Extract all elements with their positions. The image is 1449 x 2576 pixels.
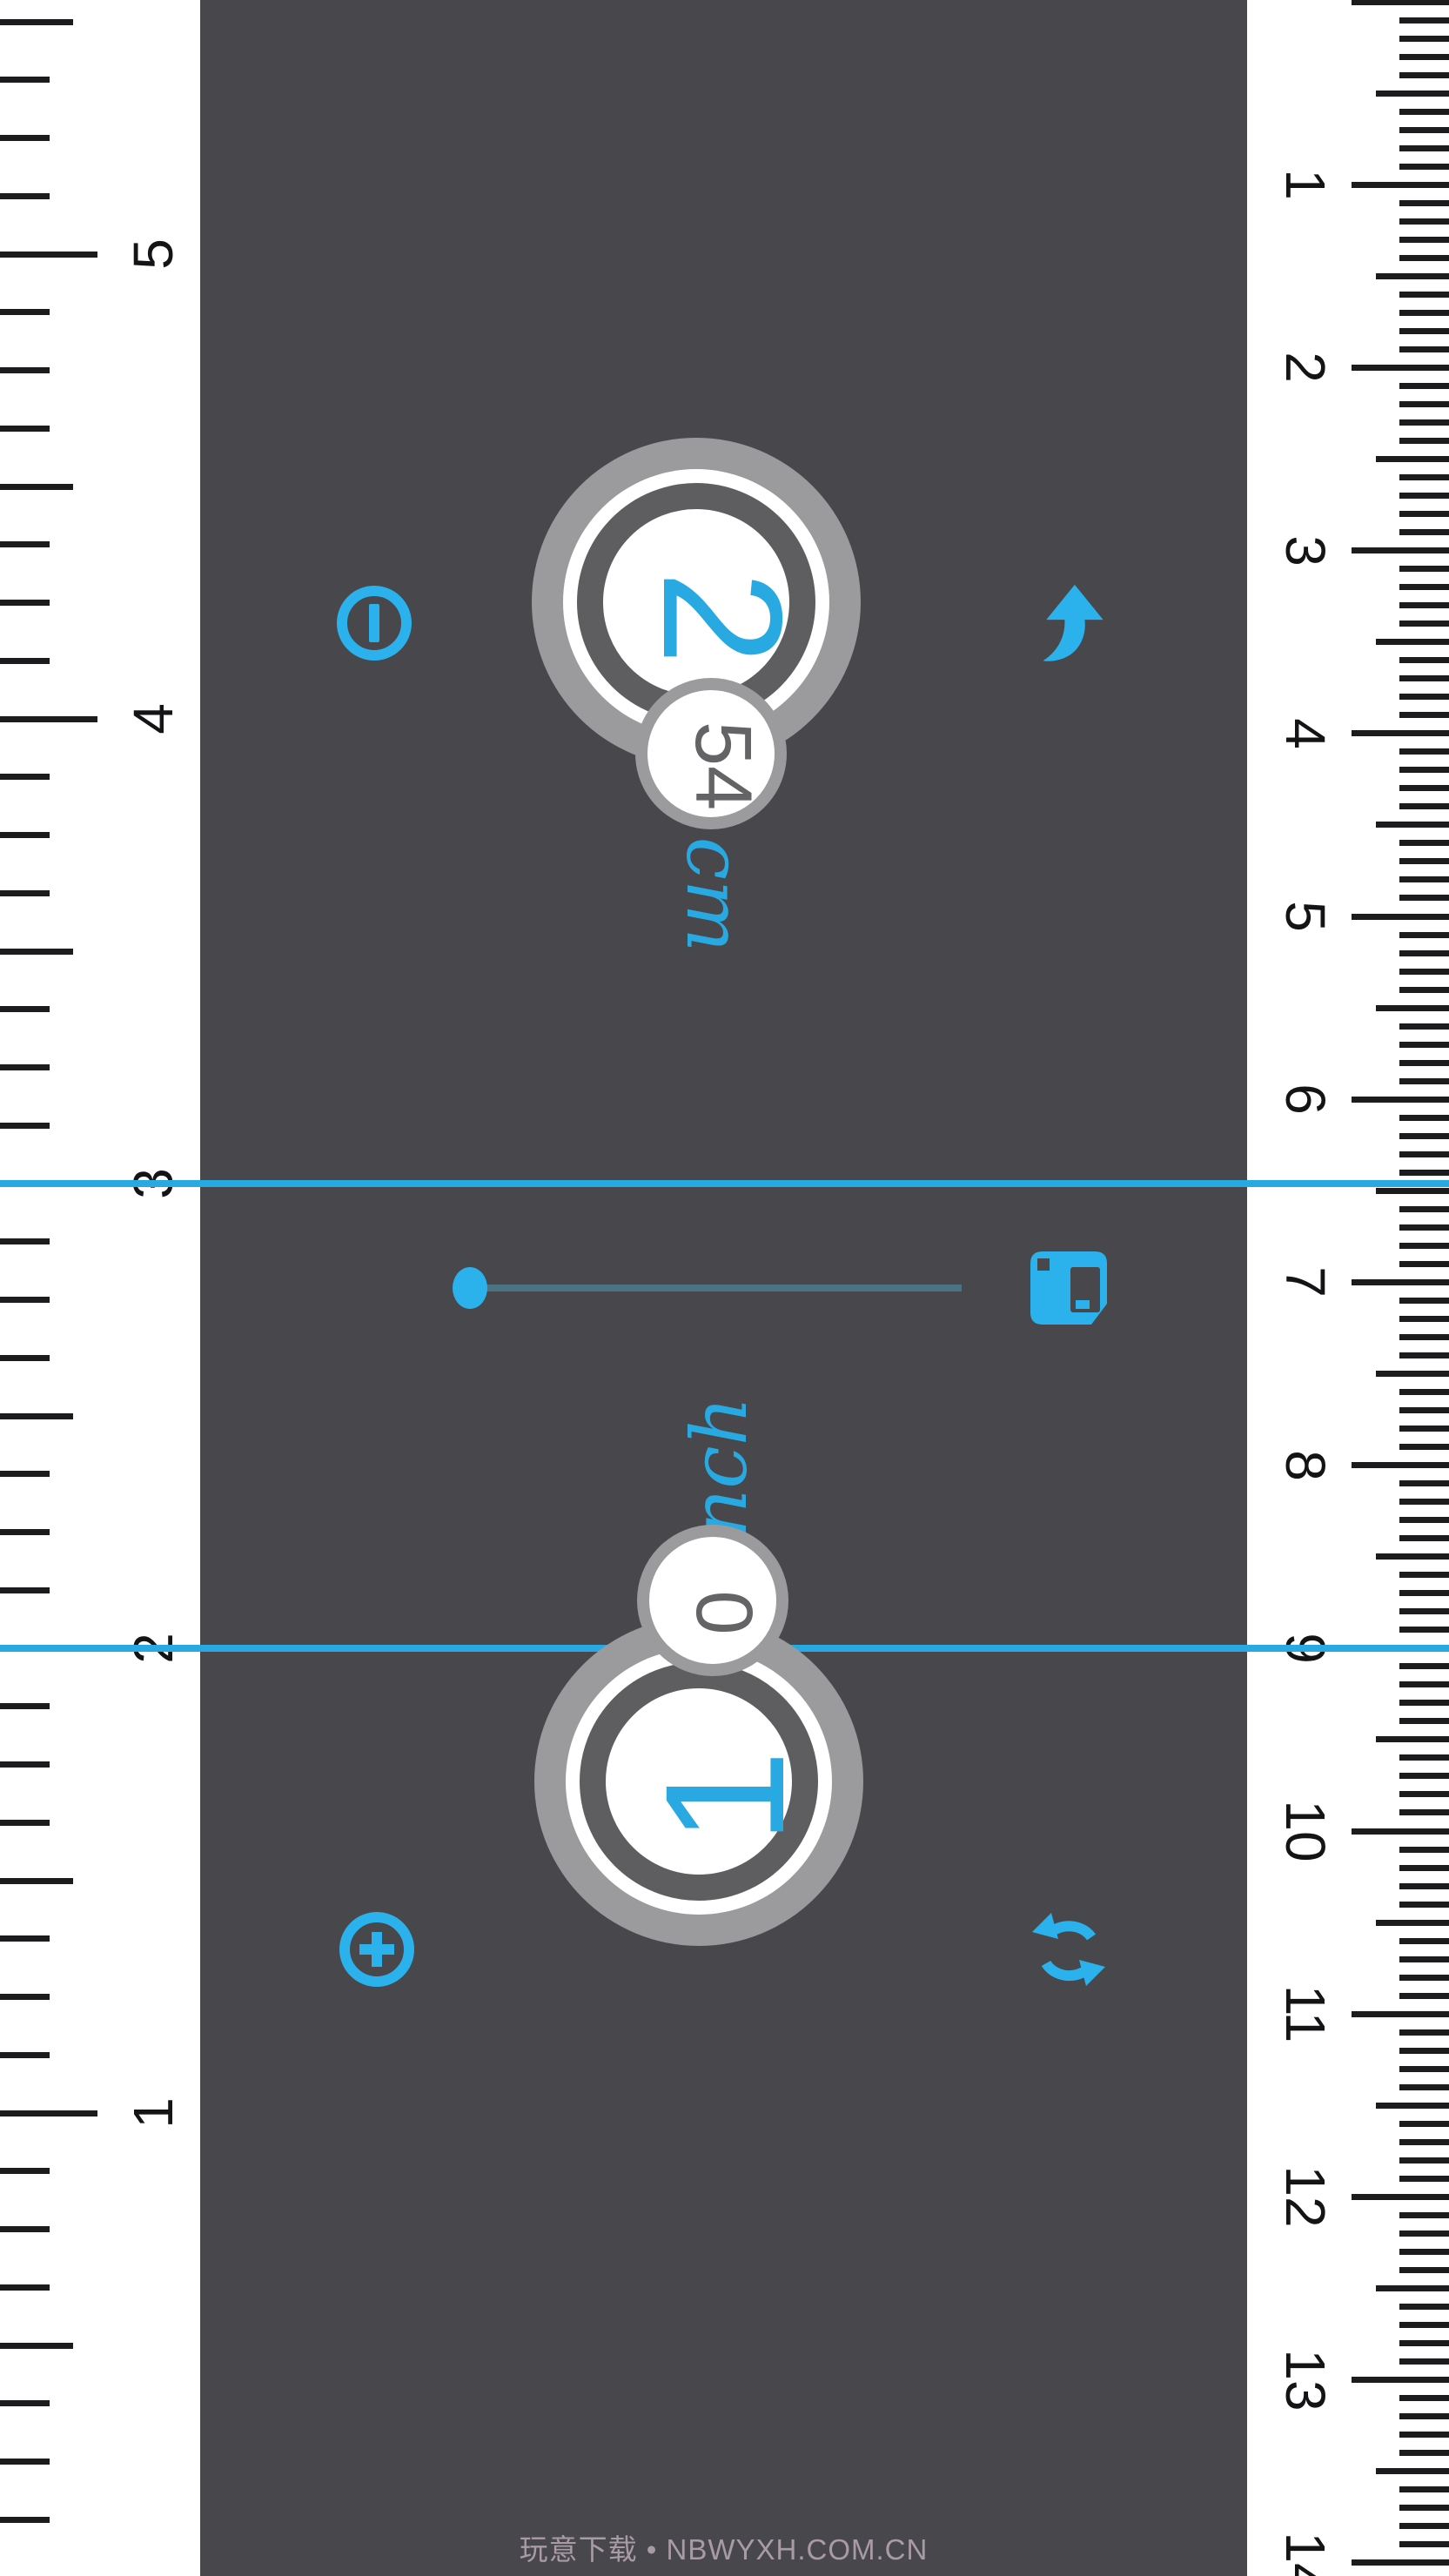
cm-tick (1399, 72, 1449, 78)
cm-number: 14 (1269, 2526, 1342, 2576)
cm-tick (1399, 1426, 1449, 1432)
cm-number: 8 (1269, 1429, 1342, 1502)
cm-tick (1399, 145, 1449, 151)
inch-fraction-value: 0 (655, 1543, 795, 1682)
cm-tick (1399, 1060, 1449, 1066)
cm-tick (1352, 914, 1449, 920)
cm-tick (1399, 1681, 1449, 1687)
cm-tick (1376, 456, 1449, 462)
inch-tick (0, 2110, 97, 2116)
cm-tick (1399, 1298, 1449, 1304)
cm-tick (1376, 1005, 1449, 1011)
cm-tick (1399, 657, 1449, 663)
cm-tick (1399, 932, 1449, 938)
cm-number: 2 (1269, 331, 1342, 404)
cm-number: 12 (1269, 2160, 1342, 2233)
inch-tick (0, 1529, 50, 1535)
cm-tick (1399, 493, 1449, 499)
cm-tick (1399, 767, 1449, 773)
cm-tick (1399, 1993, 1449, 1999)
cm-tick (1399, 237, 1449, 243)
cm-tick (1399, 1224, 1449, 1231)
cm-tick (1399, 2157, 1449, 2163)
share-arrow-button[interactable] (1031, 581, 1115, 669)
inch-tick (0, 252, 97, 258)
cm-tick (1376, 1371, 1449, 1377)
cm-tick (1399, 2541, 1449, 2547)
cm-tick (1399, 987, 1449, 993)
cm-tick (1399, 1975, 1449, 1981)
cm-tick (1352, 1097, 1449, 1103)
cm-tick (1352, 182, 1449, 188)
cm-tick (1399, 2212, 1449, 2218)
cm-tick (1399, 1608, 1449, 1614)
cm-tick (1399, 621, 1449, 627)
inch-tick (0, 1413, 73, 1419)
cm-tick (1399, 1865, 1449, 1871)
cm-tick (1399, 218, 1449, 225)
cm-tick (1399, 2139, 1449, 2145)
cm-tick (1399, 401, 1449, 407)
cm-tick (1399, 1316, 1449, 1322)
cm-tick (1376, 1920, 1449, 1926)
cm-tick (1376, 91, 1449, 97)
cm-tick (1399, 1700, 1449, 1706)
slider-knob[interactable] (453, 1267, 487, 1309)
cm-tick (1399, 529, 1449, 535)
cm-tick (1399, 36, 1449, 42)
cm-tick (1399, 694, 1449, 700)
cm-number: 5 (1269, 880, 1342, 953)
cm-tick (1399, 200, 1449, 206)
cm-tick (1399, 2395, 1449, 2401)
cm-tick (1399, 1078, 1449, 1084)
watermark-text: 玩意下载 • NBWYXH.COM.CN (200, 2531, 1247, 2569)
cm-tick (1399, 2066, 1449, 2072)
inch-tick (0, 1703, 50, 1709)
inch-tick (0, 77, 50, 83)
cm-tick (1399, 164, 1449, 170)
cm-tick (1352, 2011, 1449, 2017)
cm-tick (1399, 566, 1449, 572)
inch-tick (0, 1878, 73, 1884)
cm-tick (1399, 876, 1449, 882)
inch-tick (0, 2284, 50, 2291)
cm-tick (1399, 1773, 1449, 1779)
cm-tick (1399, 785, 1449, 791)
cm-tick (1352, 730, 1449, 736)
inch-tick (0, 2052, 50, 2058)
cm-tick (1352, 2377, 1449, 2383)
cm-tick (1399, 1535, 1449, 1541)
inch-tick (0, 2400, 50, 2406)
cm-tick (1399, 2048, 1449, 2054)
inch-tick (0, 2168, 50, 2174)
cm-tick (1399, 17, 1449, 23)
cm-tick (1399, 2413, 1449, 2419)
cm-tick (1399, 840, 1449, 846)
cm-tick (1399, 2121, 1449, 2127)
cm-tick (1399, 438, 1449, 444)
cm-tick (1399, 2176, 1449, 2182)
power-icon (331, 580, 418, 667)
cm-tick (1399, 1517, 1449, 1523)
inch-tick (0, 716, 97, 722)
inch-tick (0, 135, 50, 141)
cm-tick (1399, 2432, 1449, 2438)
cm-tick (1399, 1956, 1449, 1962)
inch-tick (0, 774, 50, 780)
inch-tick (0, 1471, 50, 1477)
cm-tick (1399, 2231, 1449, 2237)
inch-tick (0, 1355, 50, 1361)
cm-tick (1399, 712, 1449, 718)
cm-tick (1399, 419, 1449, 426)
cm-tick (1399, 950, 1449, 956)
cm-tick (1399, 1444, 1449, 1450)
rotate-sync-icon (1025, 1906, 1112, 1993)
inch-tick (0, 658, 50, 664)
cm-tick (1399, 2322, 1449, 2328)
cm-tick (1399, 1572, 1449, 1578)
cm-tick (1399, 1809, 1449, 1815)
cm-tick (1352, 547, 1449, 553)
plus-icon (333, 1906, 420, 1993)
cm-tick (1399, 1389, 1449, 1395)
cm-tick (1399, 1042, 1449, 1048)
cm-tick (1376, 273, 1449, 279)
cm-tick (1399, 2523, 1449, 2529)
cm-tick (1399, 748, 1449, 755)
cm-tick (1399, 803, 1449, 809)
cm-tick (1399, 1261, 1449, 1267)
cm-tick (1399, 1151, 1449, 1157)
power-button[interactable] (331, 580, 418, 671)
inch-tick (0, 193, 50, 199)
inch-tick (0, 1935, 50, 1942)
inch-tick (0, 1238, 50, 1244)
cm-tick (1352, 365, 1449, 371)
cm-tick (1399, 1847, 1449, 1853)
cm-number: 10 (1269, 1794, 1342, 1868)
cm-number: 13 (1269, 2344, 1342, 2417)
cm-tick (1399, 1791, 1449, 1797)
cm-tick (1399, 1663, 1449, 1669)
cm-tick (1399, 2505, 1449, 2511)
inch-tick (0, 600, 50, 606)
inch-tick (0, 367, 50, 373)
cm-tick (1376, 639, 1449, 645)
save-card-button[interactable] (1029, 1250, 1109, 1331)
cm-tick (1399, 1480, 1449, 1486)
cm-tick (1399, 858, 1449, 864)
inch-tick (0, 2517, 50, 2523)
inch-tick (0, 832, 50, 838)
cm-tick (1352, 1462, 1449, 1468)
cm-fraction-value: 54 (654, 696, 793, 835)
cm-tick (1399, 2486, 1449, 2492)
cm-tick (1399, 127, 1449, 133)
cm-tick (1399, 1883, 1449, 1889)
cm-tick (1399, 969, 1449, 975)
cm-tick (1399, 895, 1449, 901)
cm-number: 4 (1269, 697, 1342, 770)
cm-tick (1399, 602, 1449, 608)
inch-tick (0, 541, 50, 547)
cm-tick (1352, 0, 1449, 5)
inch-tick (0, 484, 73, 490)
cm-tick (1399, 1590, 1449, 1596)
cm-number: 3 (1269, 514, 1342, 587)
rotate-button[interactable] (1025, 1906, 1112, 1997)
cm-tick (1399, 584, 1449, 590)
cm-tick (1376, 1553, 1449, 1560)
inch-tick (0, 426, 50, 432)
ruler-app-screen: 123451234567891011121314 2 54 cm inch 1 … (0, 0, 1449, 2576)
inch-tick (0, 890, 50, 896)
cm-tick (1352, 1279, 1449, 1285)
inch-tick (0, 19, 73, 25)
cm-tick (1399, 2084, 1449, 2090)
cm-tick (1399, 2304, 1449, 2310)
cm-tick (1399, 1902, 1449, 1908)
inch-tick (0, 1587, 50, 1593)
cm-tick (1399, 54, 1449, 60)
cm-tick (1399, 1938, 1449, 1944)
cm-tick (1399, 1133, 1449, 1139)
cm-tick (1399, 2358, 1449, 2365)
cm-tick (1352, 1828, 1449, 1835)
cm-tick (1399, 511, 1449, 517)
cm-tick (1376, 2103, 1449, 2109)
cm-tick (1399, 383, 1449, 389)
inch-number: 1 (117, 2076, 190, 2150)
inch-tick (0, 309, 50, 315)
cm-tick (1376, 822, 1449, 828)
cm-tick (1399, 1334, 1449, 1340)
inch-ruler[interactable] (0, 0, 200, 2576)
inch-tick (0, 1994, 50, 2000)
cm-tick (1399, 346, 1449, 352)
cm-tick (1399, 255, 1449, 261)
cm-tick (1376, 2468, 1449, 2474)
cm-number: 6 (1269, 1063, 1342, 1136)
cm-tick (1399, 2029, 1449, 2036)
cm-tick (1399, 2249, 1449, 2255)
cm-tick (1399, 1023, 1449, 1030)
cm-tick (1399, 328, 1449, 334)
cm-tick (1399, 675, 1449, 681)
inch-number: 4 (117, 682, 190, 755)
inch-tick (0, 949, 73, 955)
measure-line-top[interactable] (0, 1180, 1449, 1187)
cm-tick (1352, 2194, 1449, 2200)
cm-tick (1376, 2285, 1449, 2291)
cm-tick (1376, 1188, 1449, 1194)
sd-card-icon (1029, 1250, 1109, 1326)
cm-tick (1376, 1736, 1449, 1742)
inch-value: 1 (612, 1684, 838, 1910)
cm-tick (1399, 1718, 1449, 1724)
cm-tick (1352, 2559, 1449, 2566)
cm-tick (1399, 2267, 1449, 2273)
cm-tick (1399, 1243, 1449, 1249)
cm-tick (1399, 1407, 1449, 1413)
cm-tick (1399, 1115, 1449, 1121)
curved-arrow-icon (1031, 581, 1115, 665)
cm-tick (1399, 474, 1449, 480)
cm-tick (1399, 292, 1449, 298)
cm-tick (1399, 1754, 1449, 1761)
cm-number: 1 (1269, 148, 1342, 221)
cm-tick (1399, 1170, 1449, 1176)
cm-tick (1399, 1206, 1449, 1212)
inch-tick (0, 1820, 50, 1826)
inch-tick (0, 1006, 50, 1012)
inch-tick (0, 1297, 50, 1303)
add-button[interactable] (333, 1906, 420, 1997)
inch-tick (0, 1123, 50, 1129)
inch-tick (0, 2459, 50, 2465)
cm-number: 11 (1269, 1977, 1342, 2050)
inch-tick (0, 1761, 50, 1768)
cm-tick (1399, 2450, 1449, 2456)
cm-tick (1399, 1627, 1449, 1633)
cm-tick (1399, 1499, 1449, 1505)
cm-tick (1399, 310, 1449, 316)
cm-number: 7 (1269, 1245, 1342, 1318)
cm-tick (1399, 109, 1449, 115)
cm-tick (1399, 2340, 1449, 2346)
inch-tick (0, 2226, 50, 2232)
cm-tick (1399, 1352, 1449, 1358)
inch-tick (0, 1064, 50, 1070)
slider-track[interactable] (470, 1285, 962, 1291)
inch-number: 5 (117, 218, 190, 291)
inch-tick (0, 2343, 73, 2349)
